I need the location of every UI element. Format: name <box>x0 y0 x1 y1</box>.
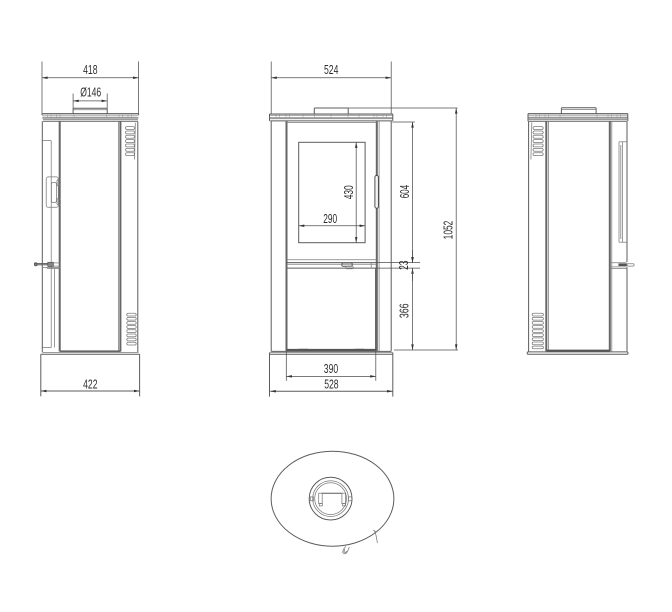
svg-text:290: 290 <box>323 212 337 226</box>
svg-text:1052: 1052 <box>442 221 456 240</box>
svg-text:604: 604 <box>398 185 412 198</box>
svg-text:524: 524 <box>324 63 338 77</box>
svg-text:Ø146: Ø146 <box>80 86 101 100</box>
svg-text:528: 528 <box>324 378 338 392</box>
svg-text:418: 418 <box>83 63 97 77</box>
svg-text:390: 390 <box>324 362 338 376</box>
svg-text:422: 422 <box>83 377 97 391</box>
svg-text:430: 430 <box>342 185 356 199</box>
svg-text:366: 366 <box>398 303 412 318</box>
svg-text:23: 23 <box>397 261 411 270</box>
